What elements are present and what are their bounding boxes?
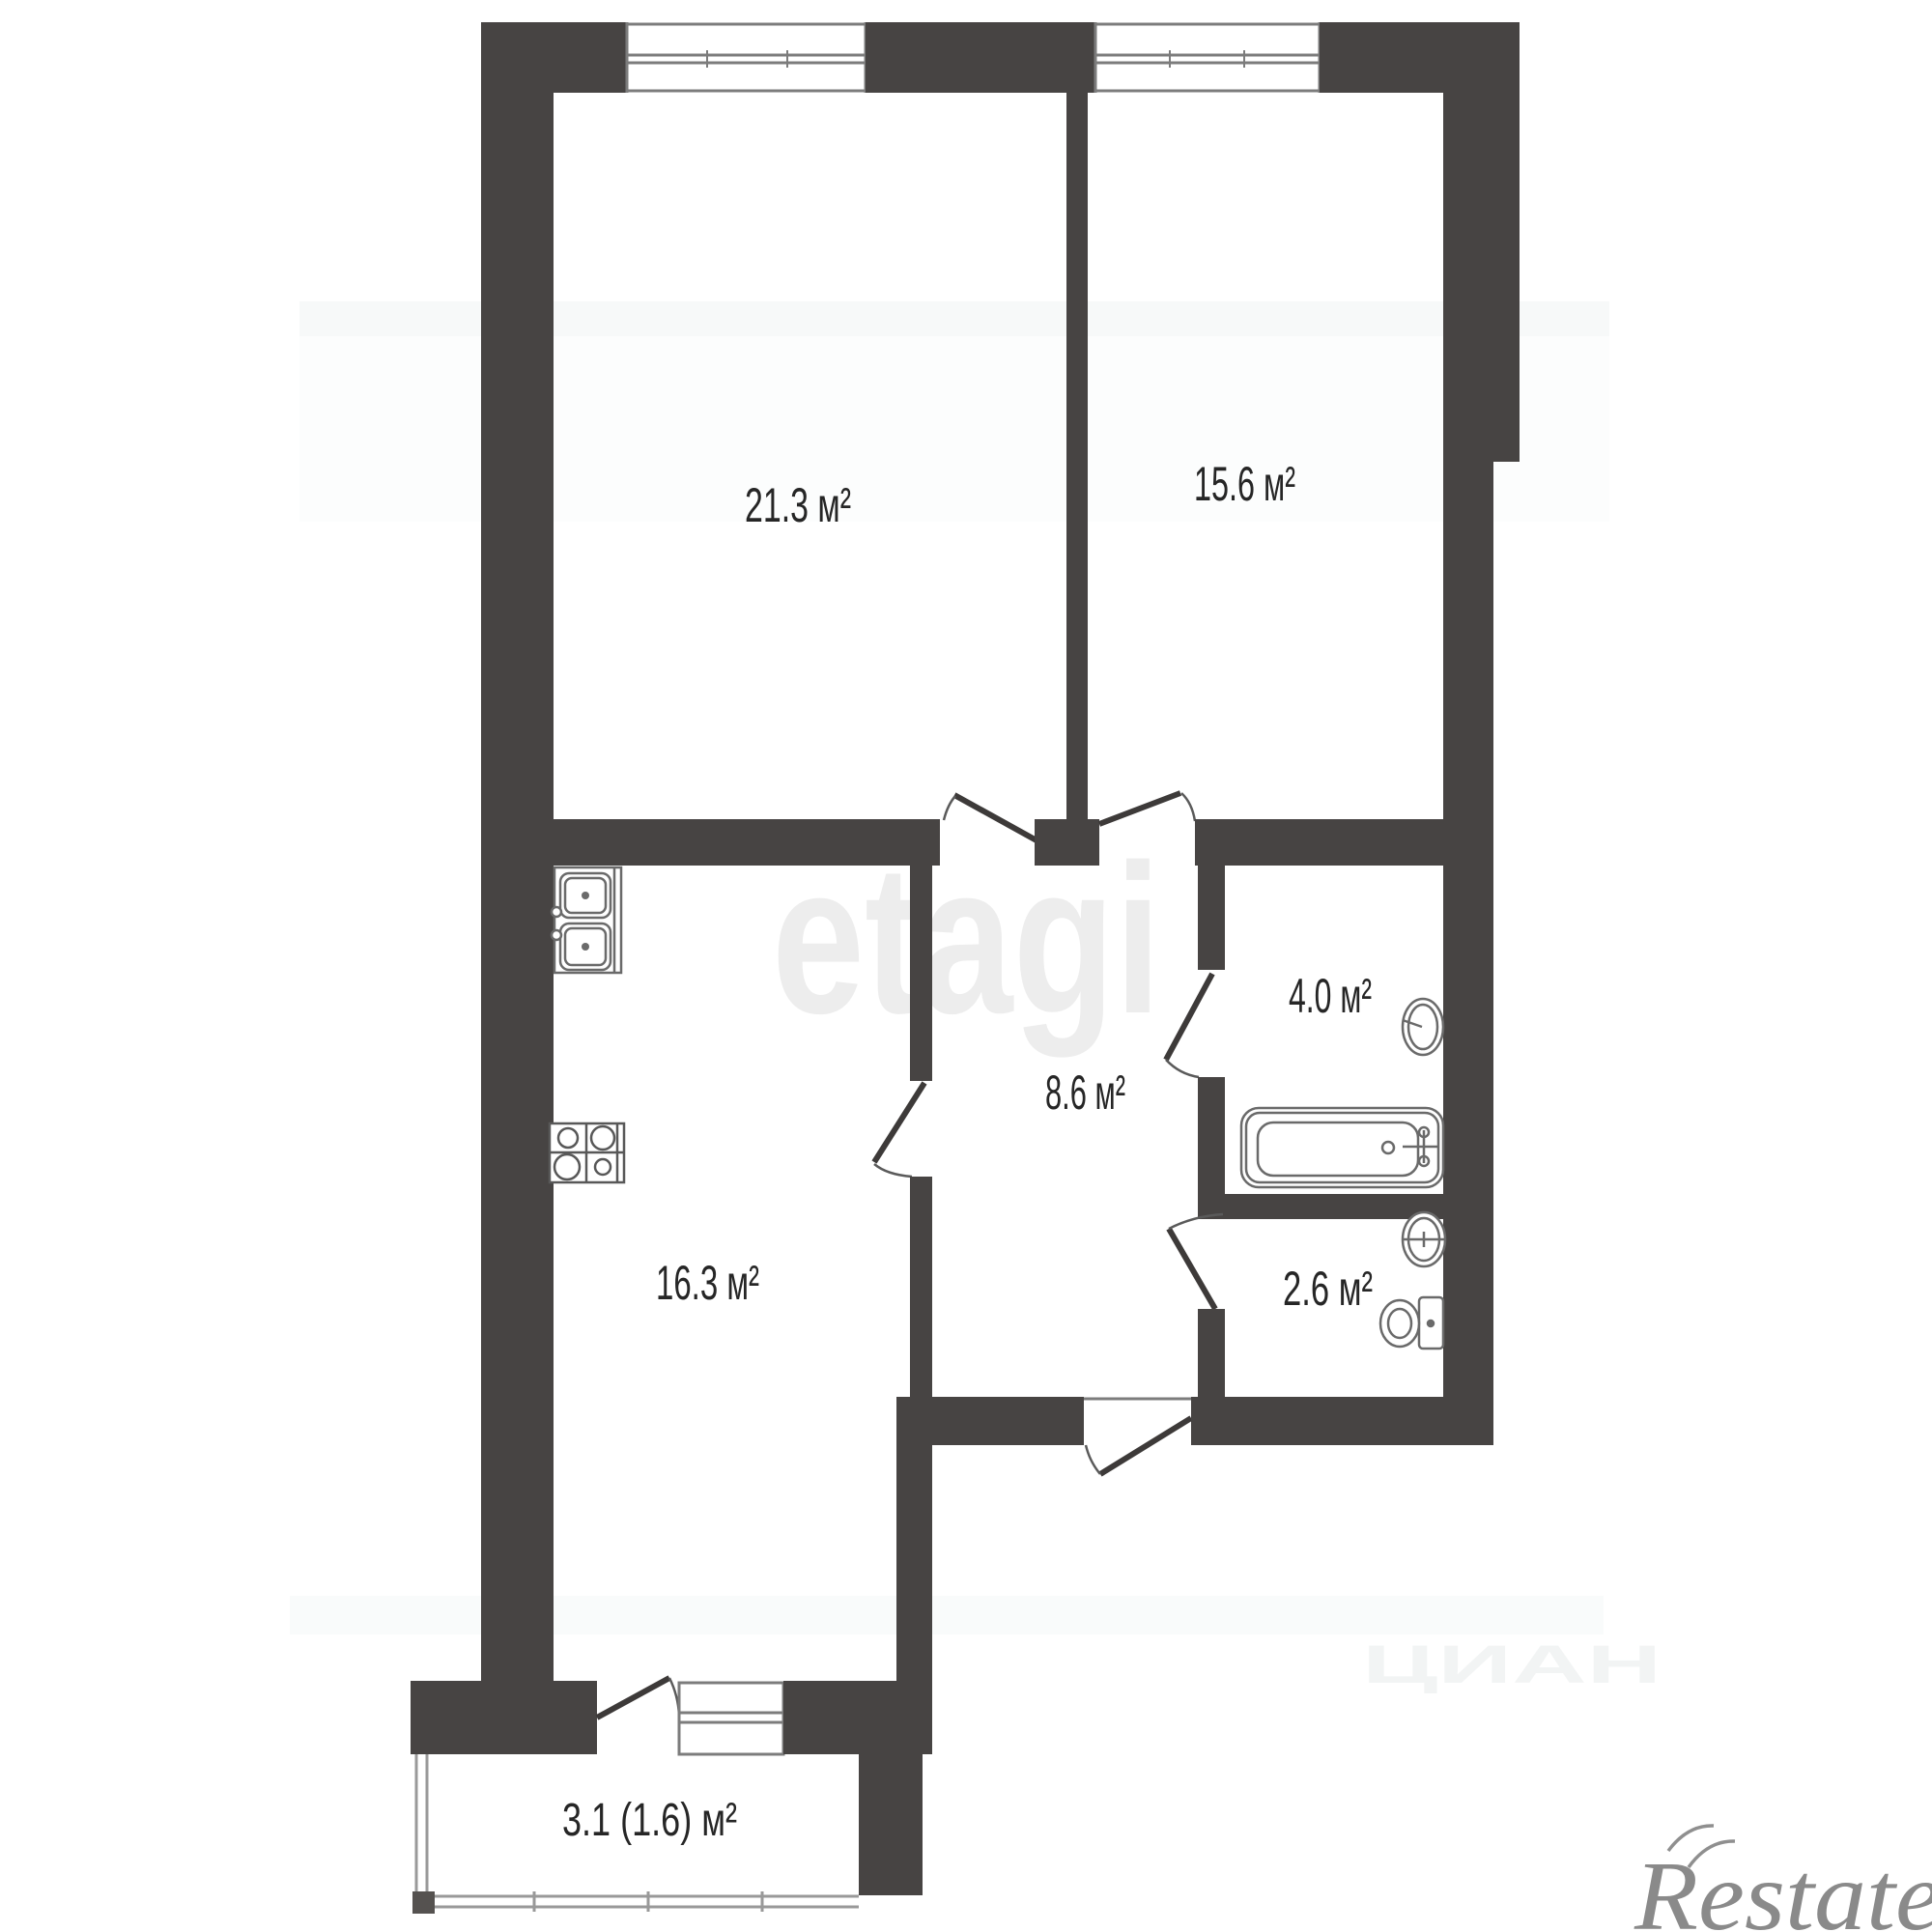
svg-text:21.3 м²: 21.3 м² [745,478,851,532]
svg-text:Restate: Restate [1634,1842,1932,1932]
svg-text:ЦИАН: ЦИАН [1362,1634,1662,1694]
svg-text:3.1 (1.6) м²: 3.1 (1.6) м² [562,1795,737,1846]
svg-text:16.3 м²: 16.3 м² [656,1256,759,1310]
svg-text:4.0 м²: 4.0 м² [1289,969,1372,1023]
svg-text:8.6 м²: 8.6 м² [1045,1065,1125,1120]
svg-text:15.6 м²: 15.6 м² [1194,457,1295,511]
svg-text:2.6 м²: 2.6 м² [1283,1262,1373,1316]
